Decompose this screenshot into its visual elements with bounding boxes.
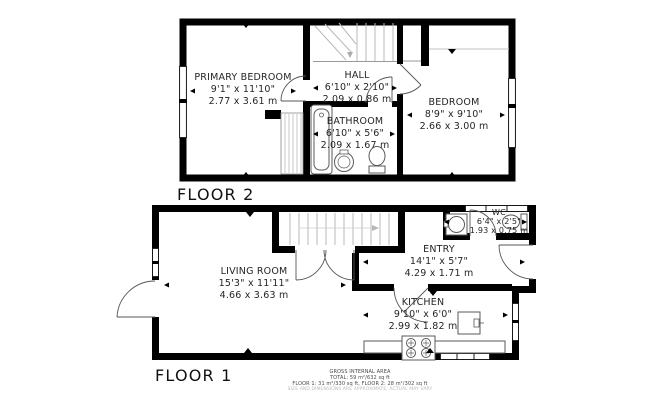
room-dims-metric: 2.09 x 0.86 m: [323, 94, 392, 106]
room-label-hall: HALL 6'10" x 2'10" 2.09 x 0.86 m: [323, 70, 392, 106]
front-door: [499, 245, 533, 279]
room-dims-imperial: 15'3" x 11'11": [219, 278, 290, 290]
room-dims-metric: 4.66 x 3.63 m: [219, 290, 290, 302]
room-dims-imperial: 14'1" x 5'7": [405, 256, 474, 268]
room-dims-imperial: 6'10" x 5'6": [321, 128, 390, 140]
living-room-double-doors: [296, 250, 354, 280]
room-label-primary-bedroom: PRIMARY BEDROOM 9'1" x 11'10" 2.77 x 3.6…: [194, 72, 291, 108]
room-label-wc: WC 6'4" x 2'5" 1.93 x 0.75 m: [470, 208, 528, 235]
room-label-bathroom: BATHROOM 6'10" x 5'6" 2.09 x 1.67 m: [321, 116, 390, 152]
floor2-window-left: [179, 66, 187, 138]
area-summary: GROSS INTERNAL AREA TOTAL: 59 m²/632 sq …: [70, 369, 650, 393]
room-name: PRIMARY BEDROOM: [194, 72, 291, 84]
room-dims-metric: 1.93 x 0.75 m: [470, 226, 528, 235]
room-name: HALL: [323, 70, 392, 82]
room-dims-metric: 2.66 x 3.00 m: [420, 121, 489, 133]
room-name: KITCHEN: [389, 297, 458, 309]
room-dims-imperial: 9'1" x 11'10": [194, 84, 291, 96]
area-summary-disclaimer: SIZE AND DIMENSIONS ARE APPROXIMATE, ACT…: [70, 387, 650, 393]
kitchen-appliance-icon: [458, 312, 484, 334]
room-dims-metric: 2.09 x 1.67 m: [321, 140, 390, 152]
room-name: LIVING ROOM: [219, 266, 290, 278]
floorplan-drawing: [0, 0, 650, 406]
room-dims-metric: 4.29 x 1.71 m: [405, 268, 474, 280]
stairs-direction-arrow-f1: [372, 225, 379, 231]
living-room-door-opening: [152, 280, 159, 317]
room-name: BEDROOM: [420, 97, 489, 109]
floor1-window-left: [152, 248, 159, 277]
room-dims-imperial: 8'9" x 9'10": [420, 109, 489, 121]
room-name: WC: [470, 208, 528, 217]
room-name: ENTRY: [405, 244, 474, 256]
floor2-window-right: [508, 78, 516, 148]
kitchen-window-bottom: [440, 353, 490, 360]
stove-icon: [402, 336, 435, 360]
room-name: BATHROOM: [321, 116, 390, 128]
kitchen-window-right: [512, 303, 519, 341]
living-room-exterior-door: [117, 281, 155, 317]
front-door-opening: [529, 245, 536, 279]
room-dims-imperial: 6'4" x 2'5": [470, 217, 528, 226]
room-dims-imperial: 9'10" x 6'0": [389, 309, 458, 321]
room-label-kitchen: KITCHEN 9'10" x 6'0" 2.99 x 1.82 m: [389, 297, 458, 333]
kitchen-counter-right: [435, 341, 505, 353]
kitchen-counter-left: [364, 341, 402, 353]
room-dims-metric: 2.77 x 3.61 m: [194, 96, 291, 108]
room-dims-imperial: 6'10" x 2'10": [323, 82, 392, 94]
floor2-title: FLOOR 2: [177, 185, 255, 204]
room-label-bedroom: BEDROOM 8'9" x 9'10" 2.66 x 3.00 m: [420, 97, 489, 133]
room-dims-metric: 2.99 x 1.82 m: [389, 321, 458, 333]
room-label-living-room: LIVING ROOM 15'3" x 11'11" 4.66 x 3.63 m: [219, 266, 290, 302]
wc-sink-icon: [444, 214, 467, 235]
primary-bedroom-wardrobe: [281, 113, 303, 174]
room-label-entry: ENTRY 14'1" x 5'7" 4.29 x 1.71 m: [405, 244, 474, 280]
